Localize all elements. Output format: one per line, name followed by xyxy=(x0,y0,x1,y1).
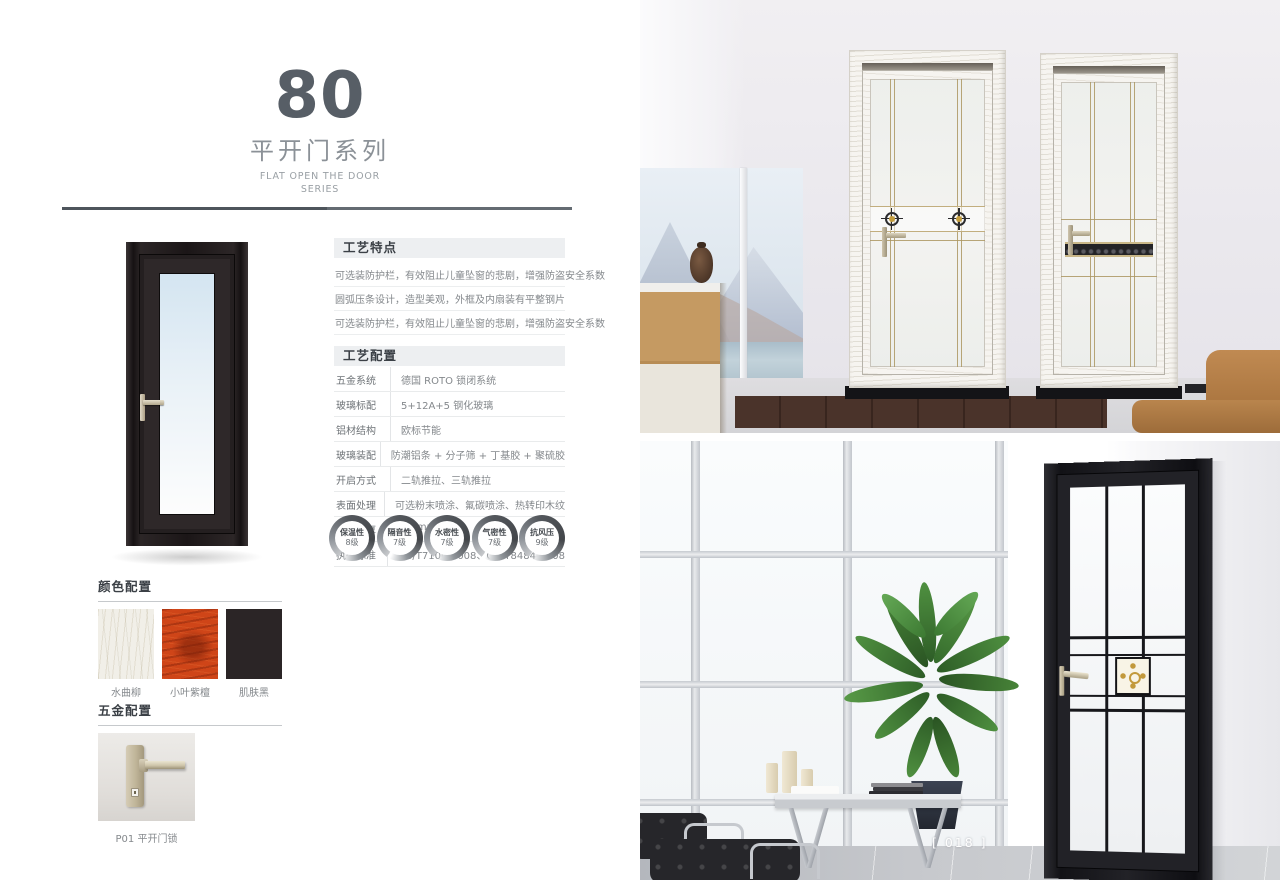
swatch-item: 水曲柳 xyxy=(98,609,154,699)
craft-features-section: 工艺特点 可选装防护栏，有效阻止儿童坠窗的悲剧，增强防盗安全系数 圆弧压条设计，… xyxy=(334,238,565,335)
performance-badges: 保温性8级 隔音性7级 水密性7级 气密性7级 抗风压9级 xyxy=(329,515,565,561)
config-row: 铝材结构 欧标节能 xyxy=(334,417,565,442)
config-label: 开启方式 xyxy=(334,467,390,491)
config-label: 玻璃装配 xyxy=(334,442,380,466)
vase xyxy=(690,247,713,283)
catalog-spread: 80 平开门系列 FLAT OPEN THE DOOR SERIES 工艺特点 xyxy=(0,0,1280,880)
series-name-cn: 平开门系列 xyxy=(0,131,640,166)
badge-soundproof: 隔音性7级 xyxy=(377,515,423,561)
glass-grid-line xyxy=(1105,487,1108,852)
bench-top xyxy=(775,794,961,808)
glass-grid-line xyxy=(1070,654,1185,656)
swatch-label: 肌肤黑 xyxy=(239,684,269,699)
interior-photo-top xyxy=(640,0,1280,433)
title-divider xyxy=(62,207,572,210)
badge-name: 保温性 xyxy=(340,528,364,538)
swatch-white-ash xyxy=(98,609,154,679)
craft-config-title: 工艺配置 xyxy=(334,346,565,366)
glass-line xyxy=(1061,219,1157,220)
hardware-config-title: 五金配置 xyxy=(98,700,282,726)
badge-level: 9级 xyxy=(535,538,548,548)
window-mullion xyxy=(640,551,1008,558)
badge-name: 气密性 xyxy=(483,528,507,538)
badge-level: 7级 xyxy=(393,538,406,548)
badge-name: 隔音性 xyxy=(388,528,412,538)
swatch-skin-black xyxy=(226,609,282,679)
lock-plate xyxy=(126,745,144,807)
lock-lever xyxy=(145,761,185,769)
door-lintel xyxy=(862,63,993,70)
crosshair-tick xyxy=(958,208,960,230)
glass-line xyxy=(1061,276,1157,277)
feature-item: 圆弧压条设计，造型美观，外框及内扇装有平整钢片 xyxy=(334,287,565,311)
leather-sofa-seat xyxy=(1132,400,1280,433)
sideboard-cabinet xyxy=(640,283,720,433)
lock-image xyxy=(98,733,195,821)
rug xyxy=(735,396,1107,428)
config-row: 玻璃装配 防潮铝条 + 分子筛 + 丁基胶 + 聚硫胶 xyxy=(334,442,565,467)
feature-item: 可选装防护栏，有效阻止儿童坠窗的悲剧，增强防盗安全系数 xyxy=(334,263,565,287)
series-name-en-line2: SERIES xyxy=(0,184,640,197)
config-value: 防潮铝条 + 分子筛 + 丁基胶 + 聚硫胶 xyxy=(380,442,565,466)
swatch-item: 肌肤黑 xyxy=(226,609,282,699)
product-door-image xyxy=(112,236,262,568)
config-label: 表面处理 xyxy=(334,492,384,516)
badge-level: 7级 xyxy=(488,538,501,548)
config-row: 表面处理 可选粉末喷涂、氟碳喷涂、热转印木纹 xyxy=(334,492,565,517)
swatch-label: 水曲柳 xyxy=(111,684,141,699)
craft-features-title: 工艺特点 xyxy=(334,238,565,258)
badge-thermal: 保温性8级 xyxy=(329,515,375,561)
lock-label: P01 平开门锁 xyxy=(98,830,195,845)
door-sash xyxy=(139,254,235,534)
lock-keyhole xyxy=(131,788,139,797)
crosshair-ornament xyxy=(884,211,900,227)
door-handle-plate xyxy=(140,394,145,421)
crosshair-tick xyxy=(948,218,970,220)
bench-leg xyxy=(907,808,929,868)
config-row: 玻璃标配 5+12A+5 钢化玻璃 xyxy=(334,392,565,417)
door-glass xyxy=(1070,484,1185,853)
mesh-ornament-band xyxy=(1065,242,1153,257)
badge-airtight: 气密性7级 xyxy=(472,515,518,561)
config-value: 二轨推拉、三轨推拉 xyxy=(390,467,565,491)
badge-level: 8级 xyxy=(345,538,358,548)
color-config-title: 颜色配置 xyxy=(98,576,282,602)
badge-name: 抗风压 xyxy=(530,528,554,538)
door-glass xyxy=(159,273,215,515)
series-name-en: FLAT OPEN THE DOOR SERIES xyxy=(0,171,640,197)
white-door-crosshair xyxy=(849,50,1006,388)
glass-line xyxy=(1130,82,1131,367)
badge-level: 7级 xyxy=(440,538,453,548)
config-row: 开启方式 二轨推拉、三轨推拉 xyxy=(334,467,565,492)
door-shadow xyxy=(108,548,266,566)
badge-windload: 抗风压9级 xyxy=(519,515,565,561)
config-label: 玻璃标配 xyxy=(334,392,390,416)
swatch-item: 小叶紫檀 xyxy=(162,609,218,699)
door-glass xyxy=(1061,82,1157,367)
palm-leaf xyxy=(938,671,1019,694)
color-config-section: 颜色配置 水曲柳 小叶紫檀 肌肤黑 xyxy=(98,576,282,699)
crosshair-tick xyxy=(881,218,903,220)
glass-grid-line xyxy=(1070,709,1185,713)
feature-item: 可选装防护栏，有效阻止儿童坠窗的悲剧，增强防盗安全系数 xyxy=(334,311,565,335)
glass-line xyxy=(1134,82,1135,367)
palm-leaf xyxy=(927,714,964,780)
crosshair-tick xyxy=(891,208,893,230)
swatch-red-sandalwood xyxy=(162,609,218,679)
door-lintel xyxy=(1053,66,1165,73)
series-title-block: 80 平开门系列 FLAT OPEN THE DOOR SERIES xyxy=(0,64,640,197)
glass-line xyxy=(1094,82,1095,367)
page-number: [ 018 ] xyxy=(932,835,988,850)
door-handle-lever xyxy=(886,233,906,238)
config-row: 五金系统 德国 ROTO 锁闭系统 xyxy=(334,367,565,392)
door-handle-lever xyxy=(143,400,164,405)
armchairs xyxy=(640,813,842,880)
window-mullion xyxy=(691,441,700,859)
hardware-config-section: 五金配置 P01 平开门锁 xyxy=(98,700,282,845)
black-door xyxy=(1044,458,1212,880)
config-value: 德国 ROTO 锁闭系统 xyxy=(390,367,565,391)
door-glass xyxy=(870,79,985,367)
interior-photo-bottom: [ 018 ] xyxy=(640,441,1280,880)
series-number: 80 xyxy=(0,64,640,129)
badge-name: 水密性 xyxy=(435,528,459,538)
glass-line xyxy=(1090,82,1091,367)
glass-line xyxy=(870,240,985,241)
config-value: 可选粉末喷涂、氟碳喷涂、热转印木纹 xyxy=(384,492,565,516)
white-door-mesh xyxy=(1040,53,1178,388)
door-handle-lever xyxy=(1072,231,1090,236)
chrome-armrest xyxy=(750,843,820,879)
config-value: 欧标节能 xyxy=(390,417,565,441)
badge-watertight: 水密性7级 xyxy=(424,515,470,561)
gold-medallion-ornament xyxy=(1115,657,1151,695)
swatch-label: 小叶紫檀 xyxy=(170,684,210,699)
door-handle-plate xyxy=(1068,225,1073,255)
craft-features-list: 可选装防护栏，有效阻止儿童坠窗的悲剧，增强防盗安全系数 圆弧压条设计，造型美观，… xyxy=(334,263,565,335)
config-label: 铝材结构 xyxy=(334,417,390,441)
color-swatches: 水曲柳 小叶紫檀 肌肤黑 xyxy=(98,609,282,699)
window-post xyxy=(740,168,747,378)
series-name-en-line1: FLAT OPEN THE DOOR xyxy=(0,171,640,184)
door-handle-plate xyxy=(882,227,887,257)
glass-grid-line xyxy=(1070,636,1185,640)
config-value: 5+12A+5 钢化玻璃 xyxy=(390,392,565,416)
config-label: 五金系统 xyxy=(334,367,390,391)
crosshair-ornament xyxy=(951,211,967,227)
